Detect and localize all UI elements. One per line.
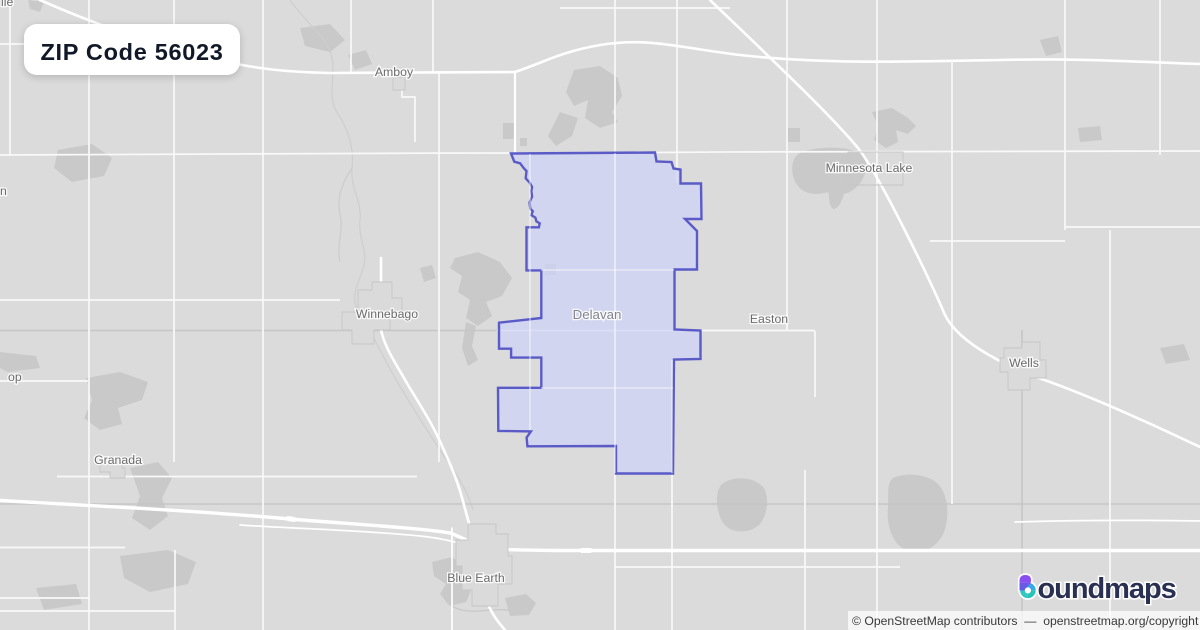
svg-text:n: n (0, 184, 7, 198)
svg-text:Easton: Easton (750, 312, 788, 326)
svg-text:oundmaps: oundmaps (1038, 573, 1176, 605)
svg-text:Minnesota Lake: Minnesota Lake (826, 161, 913, 175)
svg-text:op: op (8, 370, 22, 384)
svg-text:Wells: Wells (1009, 356, 1039, 370)
svg-text:Granada: Granada (94, 453, 142, 467)
svg-text:Winnebago: Winnebago (356, 307, 418, 321)
svg-text:Delavan: Delavan (573, 307, 622, 322)
svg-text:lle: lle (1, 0, 13, 9)
svg-text:Amboy: Amboy (375, 65, 414, 79)
svg-text:Blue Earth: Blue Earth (447, 571, 505, 585)
